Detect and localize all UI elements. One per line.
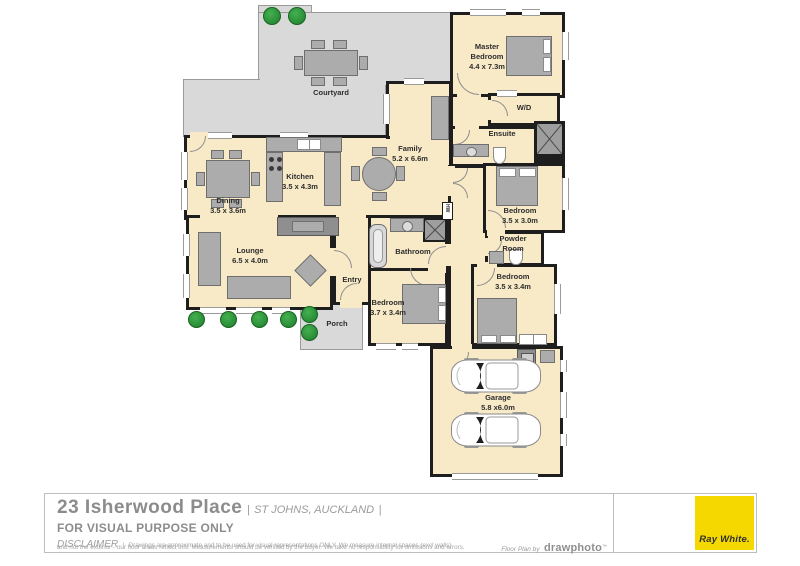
- pillow: [481, 335, 497, 343]
- tv: [292, 221, 324, 232]
- family-chair: [396, 166, 405, 181]
- visual-purpose-note: FOR VISUAL PURPOSE ONLY: [57, 521, 234, 535]
- property-locality: ST JOHNS, AUCKLAND: [254, 504, 374, 516]
- toilet: [493, 147, 506, 164]
- outdoor-chair: [333, 77, 347, 86]
- pillow: [499, 168, 516, 177]
- bedroom-right-bottom-label: Bedroom 3.5 x 3.4m: [479, 272, 547, 292]
- window: [562, 32, 569, 60]
- property-address: 23 Isherwood Place: [57, 497, 242, 518]
- tree: [288, 7, 306, 25]
- bedroom-right-top-label: Bedroom 3.5 x 3.0m: [486, 206, 554, 226]
- tree: [301, 306, 318, 323]
- family-label: Family 5.2 x 6.6m: [376, 144, 444, 164]
- garage-label: Garage 5.8 x6.0m: [464, 393, 532, 413]
- family-chair: [351, 166, 360, 181]
- floor-plan-page: HW Courtyard Master Bedroom 4.4 x 7.3m: [0, 0, 800, 566]
- address-line: 23 Isherwood Place | ST JOHNS, AUCKLAND …: [57, 497, 381, 519]
- car: [450, 411, 542, 449]
- address-separator: |: [247, 504, 250, 516]
- trademark-symbol: ™: [602, 544, 607, 550]
- outdoor-table: [304, 50, 358, 76]
- outdoor-chair: [333, 40, 347, 49]
- shower: [534, 121, 565, 157]
- tree: [188, 311, 205, 328]
- car: [450, 357, 542, 395]
- disclaimer-text-2: and not the exterior - our floor areas r…: [57, 544, 465, 553]
- wall-patch: [428, 265, 446, 273]
- window: [560, 360, 567, 372]
- wardrobe: [519, 334, 547, 345]
- master-bedroom-label: Master Bedroom 4.4 x 7.3m: [456, 42, 518, 71]
- bathtub: [369, 224, 387, 268]
- tree: [263, 7, 281, 25]
- tree: [220, 311, 237, 328]
- window: [497, 90, 517, 97]
- pillow: [500, 335, 516, 343]
- ray-white-logo: Ray White.: [695, 496, 754, 550]
- dining-chair: [211, 150, 224, 159]
- shower: [423, 218, 447, 242]
- window: [181, 188, 188, 210]
- pillow: [438, 305, 446, 321]
- lounge-label: Lounge 6.5 x 4.0m: [216, 246, 284, 266]
- dining-table: [206, 160, 250, 198]
- window: [562, 178, 569, 210]
- footer-divider: [613, 494, 614, 552]
- outdoor-chair: [294, 56, 303, 70]
- ray-white-wordmark: Ray White.: [699, 534, 750, 550]
- outdoor-chair: [311, 77, 325, 86]
- vanity: [390, 218, 424, 232]
- pillow: [438, 287, 446, 303]
- washing-machine: [540, 350, 555, 363]
- wall-patch: [336, 212, 366, 220]
- dining-chair: [229, 150, 242, 159]
- dining-chair: [251, 172, 260, 186]
- couch: [431, 96, 449, 140]
- wd-label: W/D: [494, 103, 554, 113]
- porch-label: Porch: [317, 319, 357, 329]
- sliding-door: [383, 94, 390, 124]
- hw-label: HW: [444, 204, 450, 212]
- tree: [280, 311, 297, 328]
- outdoor-chair: [311, 40, 325, 49]
- kitchen-label: Kitchen 3.5 x 4.3m: [266, 172, 334, 192]
- window: [554, 284, 561, 314]
- window: [181, 152, 188, 180]
- pillow: [519, 168, 536, 177]
- outdoor-chair: [359, 56, 368, 70]
- credit-line: Floor Plan by drawphoto™: [425, 538, 607, 556]
- powder-room-label: Powder Room: [483, 234, 543, 254]
- entry-label: Entry: [332, 275, 372, 285]
- pillow: [543, 39, 551, 54]
- window: [402, 343, 418, 350]
- window: [560, 434, 567, 446]
- bathroom-label: Bathroom: [383, 247, 443, 257]
- window: [404, 78, 424, 85]
- tree: [301, 324, 318, 341]
- wall-segment: [534, 155, 565, 165]
- ensuite-label: Ensuite: [472, 129, 532, 139]
- sofa: [227, 276, 291, 299]
- dining-label: Dining 3.5 x 3.6m: [195, 196, 261, 216]
- tree: [251, 311, 268, 328]
- footer-panel: 23 Isherwood Place | ST JOHNS, AUCKLAND …: [44, 493, 757, 553]
- window: [208, 132, 232, 139]
- window: [183, 234, 190, 256]
- window: [560, 392, 567, 418]
- window: [522, 9, 540, 16]
- pillow: [543, 57, 551, 72]
- dining-chair: [196, 172, 205, 186]
- kitchen-sink: [297, 139, 321, 150]
- garage-door: [452, 473, 538, 480]
- credit-prefix: Floor Plan by: [501, 546, 539, 553]
- window: [183, 274, 190, 298]
- window: [470, 9, 506, 16]
- courtyard-label: Courtyard: [301, 88, 361, 98]
- vanity: [453, 144, 489, 157]
- family-chair: [372, 192, 387, 201]
- drawphoto-logo: drawphoto: [544, 542, 602, 554]
- address-separator: |: [379, 504, 382, 516]
- bedroom-left-label: Bedroom 3.7 x 3.4m: [354, 298, 422, 318]
- window: [376, 343, 396, 350]
